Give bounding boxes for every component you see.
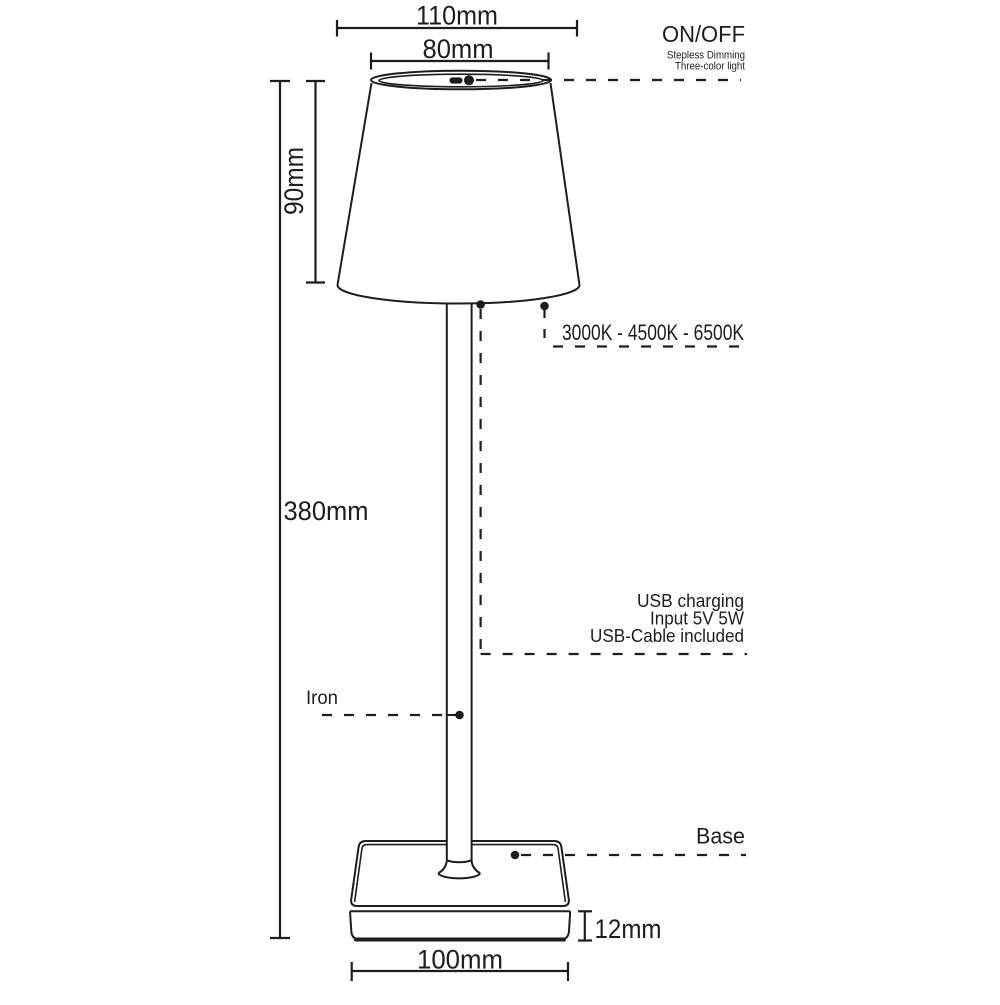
svg-text:12mm: 12mm: [595, 914, 662, 944]
svg-text:380mm: 380mm: [284, 496, 369, 526]
svg-text:3000K - 4500K - 6500K: 3000K - 4500K - 6500K: [562, 320, 744, 345]
svg-text:Base: Base: [696, 824, 745, 849]
svg-text:100mm: 100mm: [417, 945, 503, 975]
svg-text:USB-Cable included: USB-Cable included: [590, 626, 744, 646]
svg-text:Three-color light: Three-color light: [675, 61, 745, 73]
svg-text:Iron: Iron: [306, 688, 338, 709]
svg-text:ON/OFF: ON/OFF: [662, 21, 745, 47]
svg-text:90mm: 90mm: [279, 147, 309, 215]
svg-text:110mm: 110mm: [416, 1, 498, 31]
svg-text:80mm: 80mm: [423, 34, 494, 64]
